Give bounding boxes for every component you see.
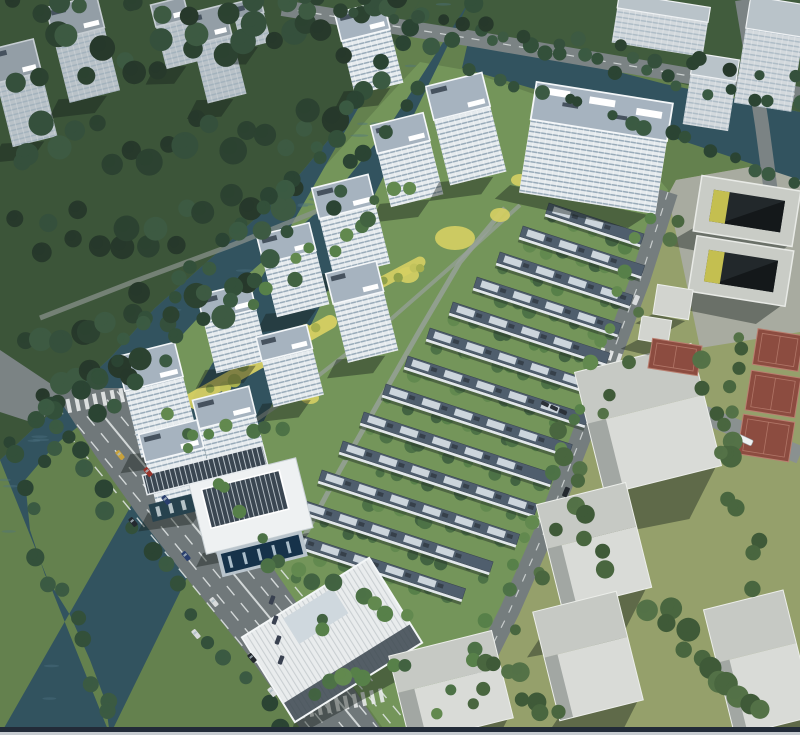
tree-highlight xyxy=(279,141,288,150)
tree-highlight xyxy=(752,701,763,712)
aerial-rendering-canvas xyxy=(0,0,800,735)
tree-highlight xyxy=(102,694,111,703)
tree-highlight xyxy=(56,26,69,39)
tree-highlight xyxy=(646,214,652,220)
tree-highlight xyxy=(174,134,189,149)
tree-highlight xyxy=(509,82,515,88)
tree-highlight xyxy=(727,85,733,91)
tree-highlight xyxy=(518,31,526,39)
tree-highlight xyxy=(762,96,769,103)
tree-highlight xyxy=(370,196,376,202)
tree-highlight xyxy=(28,550,38,560)
tree-highlight xyxy=(374,73,384,83)
tree-highlight xyxy=(318,615,324,621)
tree-highlight xyxy=(91,116,100,125)
tree-highlight xyxy=(116,217,130,231)
tree-highlight xyxy=(606,324,612,330)
tree-highlight xyxy=(130,284,142,296)
tree-highlight xyxy=(378,607,387,616)
tree-highlight xyxy=(627,117,635,125)
tree-highlight xyxy=(145,543,155,553)
tree-highlight xyxy=(349,8,355,14)
tree-highlight xyxy=(277,423,285,431)
tree-highlight xyxy=(412,11,420,19)
tree-highlight xyxy=(18,333,27,342)
tree-highlight xyxy=(596,545,604,553)
tree-highlight xyxy=(628,53,635,60)
tree-highlight xyxy=(344,155,352,163)
tree-highlight xyxy=(50,137,63,150)
tree-highlight xyxy=(516,694,524,702)
tree-highlight xyxy=(103,155,115,167)
tree-highlight xyxy=(747,546,755,554)
tree-highlight xyxy=(550,524,558,532)
tree-highlight xyxy=(432,709,438,715)
tree-highlight xyxy=(604,390,611,397)
tree-highlight xyxy=(101,704,110,713)
tree-highlight xyxy=(790,178,796,184)
image-border-dark xyxy=(0,727,800,732)
tree-highlight xyxy=(315,152,322,159)
tree-highlight xyxy=(297,122,306,131)
tree-highlight xyxy=(39,456,46,463)
tree-highlight xyxy=(31,329,44,342)
tree-highlight xyxy=(256,125,268,137)
tree-highlight xyxy=(753,534,762,543)
tree-highlight xyxy=(678,620,691,633)
tree-highlight xyxy=(222,186,234,198)
tree-highlight xyxy=(487,658,495,666)
tree-highlight xyxy=(568,498,578,508)
tree-highlight xyxy=(125,305,136,316)
tree-highlight xyxy=(340,102,348,110)
tree-highlight xyxy=(66,231,76,241)
tree-highlight xyxy=(388,659,396,667)
tree-highlight xyxy=(128,375,137,384)
tree-highlight xyxy=(181,8,191,18)
tree-highlight xyxy=(673,216,680,223)
tree-highlight xyxy=(216,651,225,660)
water-ripple xyxy=(298,203,314,206)
tree-highlight xyxy=(146,219,159,232)
tree-highlight xyxy=(91,237,103,249)
water-ripple xyxy=(42,697,56,700)
tree-highlight xyxy=(304,243,310,249)
tree-highlight xyxy=(722,493,730,501)
water-ripple xyxy=(2,530,16,533)
tree-highlight xyxy=(37,389,45,397)
tree-highlight xyxy=(66,122,77,133)
tree-highlight xyxy=(341,229,348,236)
tree-highlight xyxy=(293,563,301,571)
tree-highlight xyxy=(112,356,119,363)
tree-highlight xyxy=(693,52,701,60)
tree-highlight xyxy=(574,462,582,470)
tree-highlight xyxy=(508,560,514,566)
tree-highlight xyxy=(649,55,657,63)
tree-highlight xyxy=(164,307,173,316)
tree-highlight xyxy=(439,15,445,21)
tree-highlight xyxy=(263,696,272,705)
tree-highlight xyxy=(239,123,249,133)
tree-highlight xyxy=(259,422,266,429)
tree-highlight xyxy=(51,332,64,345)
tree-highlight xyxy=(715,447,723,455)
tree-highlight xyxy=(96,481,106,491)
tree-highlight xyxy=(667,126,676,135)
tree-highlight xyxy=(74,443,84,453)
tree-highlight xyxy=(219,482,225,488)
tree-highlight xyxy=(696,382,704,390)
tree-highlight xyxy=(642,65,648,71)
tree-highlight xyxy=(187,24,200,37)
tree-highlight xyxy=(310,689,317,696)
water-ripple xyxy=(357,123,368,126)
tree-highlight xyxy=(750,165,757,172)
tree-highlight xyxy=(512,664,523,675)
tree-highlight xyxy=(305,575,314,584)
tree-highlight xyxy=(390,15,396,21)
tree-highlight xyxy=(118,53,127,62)
tree-highlight xyxy=(249,300,255,306)
tree-highlight xyxy=(79,68,89,78)
tree-highlight xyxy=(8,211,17,220)
tree-highlight xyxy=(488,36,494,42)
tree-highlight xyxy=(169,237,179,247)
tree-highlight xyxy=(217,234,225,242)
tree-highlight xyxy=(469,699,475,705)
tree-highlight xyxy=(317,624,325,632)
tree-highlight xyxy=(357,589,366,598)
tree-highlight xyxy=(328,201,336,209)
tree-highlight xyxy=(173,271,182,280)
tree-highlight xyxy=(203,263,211,271)
tree-highlight xyxy=(555,39,561,45)
tree-highlight xyxy=(711,407,719,415)
tree-highlight xyxy=(29,412,39,422)
tree-highlight xyxy=(469,643,477,651)
tree-highlight xyxy=(220,420,227,427)
tree-highlight xyxy=(31,112,45,126)
tree-highlight xyxy=(150,63,160,73)
tree-highlight xyxy=(34,6,44,16)
tree-highlight xyxy=(361,213,370,222)
tree-highlight xyxy=(32,69,42,79)
tree-highlight xyxy=(546,466,555,475)
tree-highlight xyxy=(96,313,108,325)
tree-highlight xyxy=(7,74,18,85)
tree-highlight xyxy=(48,442,56,450)
tree-highlight xyxy=(222,139,237,154)
tree-highlight xyxy=(198,313,206,321)
tree-highlight xyxy=(56,584,64,592)
tree-highlight xyxy=(499,32,505,38)
tree-highlight xyxy=(50,421,58,429)
tree-highlight xyxy=(593,54,600,61)
tree-highlight xyxy=(724,64,732,72)
garden-patch xyxy=(435,226,475,250)
tree-highlight xyxy=(77,461,87,471)
tree-highlight xyxy=(380,126,388,134)
tree-highlight xyxy=(155,7,165,17)
tree-highlight xyxy=(705,145,712,152)
tree-highlight xyxy=(337,49,346,58)
tree-highlight xyxy=(262,559,270,567)
tree-highlight xyxy=(124,62,137,75)
tree-highlight xyxy=(613,287,619,293)
tree-highlight xyxy=(701,659,713,671)
tree-highlight xyxy=(595,336,602,343)
tree-highlight xyxy=(258,534,264,540)
tree-highlight xyxy=(729,687,741,699)
tree-highlight xyxy=(680,132,687,139)
tree-highlight xyxy=(241,672,248,679)
tree-highlight xyxy=(746,582,755,591)
tree-highlight xyxy=(750,95,757,102)
tree-highlight xyxy=(664,233,672,241)
tree-highlight xyxy=(186,609,193,616)
tree-highlight xyxy=(184,444,190,450)
tree-highlight xyxy=(369,597,377,605)
tree-highlight xyxy=(529,694,539,704)
tree-highlight xyxy=(28,503,35,510)
tree-highlight xyxy=(623,356,631,364)
tree-highlight xyxy=(672,81,678,87)
tree-highlight xyxy=(356,146,365,155)
tree-highlight xyxy=(34,244,45,255)
tree-highlight xyxy=(736,343,744,351)
tree-highlight xyxy=(716,674,729,687)
tree-highlight xyxy=(703,90,709,96)
tree-highlight xyxy=(467,654,475,662)
tree-highlight xyxy=(258,202,266,210)
tree-highlight xyxy=(298,100,311,113)
tree-highlight xyxy=(234,506,242,514)
red-court xyxy=(745,370,800,417)
tree-highlight xyxy=(572,475,580,483)
tree-highlight xyxy=(755,71,761,77)
water-ripple xyxy=(236,269,254,272)
tree-highlight xyxy=(152,30,165,43)
tree-highlight xyxy=(394,274,399,279)
tree-highlight xyxy=(335,5,343,13)
tree-highlight xyxy=(446,33,455,42)
tree-highlight xyxy=(312,21,324,33)
tree-highlight xyxy=(577,532,586,541)
tree-highlight xyxy=(539,47,547,55)
tree-highlight xyxy=(231,223,241,233)
tree-highlight xyxy=(160,355,167,362)
tree-highlight xyxy=(254,223,264,233)
tree-highlight xyxy=(277,181,288,192)
red-court xyxy=(752,329,800,372)
tree-highlight xyxy=(184,261,191,268)
tree-highlight xyxy=(572,33,580,41)
water-ripple xyxy=(44,665,59,668)
tree-highlight xyxy=(97,503,107,513)
tree-highlight xyxy=(336,669,346,679)
tree-highlight xyxy=(659,615,669,625)
tree-highlight xyxy=(348,92,358,102)
tree-highlight xyxy=(108,400,116,408)
tree-highlight xyxy=(579,49,587,57)
tree-highlight xyxy=(573,97,579,103)
tree-highlight xyxy=(374,55,383,64)
tree-highlight xyxy=(39,400,48,409)
tree-highlight xyxy=(495,75,502,82)
water-ripple xyxy=(436,3,451,6)
water-ripple xyxy=(405,65,417,68)
tree-highlight xyxy=(412,82,420,90)
tree-highlight xyxy=(202,637,209,644)
tree-highlight xyxy=(662,599,674,611)
tree-highlight xyxy=(90,405,100,415)
tree-highlight xyxy=(609,67,617,75)
tree-highlight xyxy=(694,352,704,362)
tree-highlight xyxy=(330,131,340,141)
tree-highlight xyxy=(171,577,180,586)
tree-highlight xyxy=(598,562,608,572)
tree-highlight xyxy=(312,142,319,149)
tree-highlight xyxy=(169,329,177,337)
tree-highlight xyxy=(695,651,704,660)
tree-highlight xyxy=(8,446,18,456)
tree-highlight xyxy=(289,273,297,281)
tree-highlight xyxy=(400,660,407,667)
tree-highlight xyxy=(634,308,640,314)
tree-highlight xyxy=(570,415,576,421)
tree-highlight xyxy=(504,583,512,591)
tree-highlight xyxy=(323,675,332,684)
tree-highlight xyxy=(118,333,125,340)
tree-highlight xyxy=(190,111,199,120)
tree-highlight xyxy=(92,37,106,51)
tree-highlight xyxy=(19,481,28,490)
tree-highlight xyxy=(220,4,232,16)
tree-highlight xyxy=(72,612,80,620)
tree-highlight xyxy=(663,70,670,77)
tree-highlight xyxy=(73,382,84,393)
tree-highlight xyxy=(123,142,134,153)
tree-highlight xyxy=(193,203,206,216)
tree-highlight xyxy=(402,610,409,617)
tree-highlight xyxy=(724,381,731,388)
tree-highlight xyxy=(734,363,741,370)
tree-highlight xyxy=(578,506,588,516)
tree-highlight xyxy=(262,251,273,262)
tree-highlight xyxy=(479,614,487,622)
tree-highlight xyxy=(402,100,409,107)
tree-highlight xyxy=(41,578,50,587)
tree-highlight xyxy=(566,95,572,101)
tree-highlight xyxy=(511,625,517,631)
tree-highlight xyxy=(248,274,256,282)
tree-highlight xyxy=(356,671,365,680)
tree-highlight xyxy=(556,449,566,459)
tree-highlight xyxy=(197,286,206,295)
tree-highlight xyxy=(18,145,30,157)
tree-highlight xyxy=(300,3,310,13)
tree-highlight xyxy=(388,183,396,191)
tree-highlight xyxy=(137,317,145,325)
tree-highlight xyxy=(457,18,465,26)
tree-highlight xyxy=(282,226,289,233)
garden-patch xyxy=(490,208,510,222)
tree-highlight xyxy=(248,425,256,433)
tree-highlight xyxy=(630,233,637,240)
tree-highlight xyxy=(52,374,65,387)
tree-highlight xyxy=(424,39,434,49)
tree-highlight xyxy=(330,246,337,253)
tree-highlight xyxy=(731,153,737,159)
tree-highlight xyxy=(727,406,734,413)
water-ripple xyxy=(31,435,47,438)
tree-highlight xyxy=(551,423,561,433)
tree-highlight xyxy=(553,706,561,714)
tree-highlight xyxy=(262,188,272,198)
tree-highlight xyxy=(677,643,686,652)
tree-highlight xyxy=(84,678,93,687)
tree-highlight xyxy=(224,294,232,302)
tree-highlight xyxy=(202,116,212,126)
tree-highlight xyxy=(403,20,413,30)
tree-highlight xyxy=(226,279,236,289)
tree-highlight xyxy=(619,266,627,274)
tree-highlight xyxy=(608,111,614,117)
tree-highlight xyxy=(763,168,771,176)
water-ripple xyxy=(351,134,369,137)
tree-highlight xyxy=(260,283,268,291)
tree-highlight xyxy=(464,64,471,71)
tree-highlight xyxy=(216,45,229,58)
tree-highlight xyxy=(520,533,526,539)
tree-highlight xyxy=(76,632,85,641)
tree-highlight xyxy=(616,40,623,47)
tree-highlight xyxy=(410,264,415,269)
tree-highlight xyxy=(41,215,51,225)
tree-highlight xyxy=(536,572,544,580)
tree-highlight xyxy=(162,408,169,415)
tree-highlight xyxy=(312,324,317,329)
tree-highlight xyxy=(70,202,80,212)
tree-highlight xyxy=(291,254,297,260)
tree-highlight xyxy=(63,431,70,438)
tree-highlight xyxy=(502,665,510,673)
tree-highlight xyxy=(335,186,342,193)
tree-highlight xyxy=(718,419,726,427)
tree-highlight xyxy=(204,430,210,436)
tree-highlight xyxy=(397,37,406,46)
tree-highlight xyxy=(243,13,257,27)
tree-highlight xyxy=(67,370,79,382)
tree-highlight xyxy=(478,683,486,691)
tree-highlight xyxy=(160,557,169,566)
tree-highlight xyxy=(526,516,534,524)
tree-highlight xyxy=(241,199,254,212)
tree-highlight xyxy=(598,409,604,415)
tree-highlight xyxy=(79,322,92,335)
water-ripple xyxy=(28,439,41,442)
tree-highlight xyxy=(92,371,99,378)
tree-highlight xyxy=(324,108,339,123)
tree-highlight xyxy=(138,151,153,166)
tree-highlight xyxy=(5,437,12,444)
tree-highlight xyxy=(576,405,582,411)
tree-highlight xyxy=(584,356,593,365)
tree-highlight xyxy=(188,430,194,436)
tree-highlight xyxy=(267,33,276,42)
tree-highlight xyxy=(533,705,542,714)
